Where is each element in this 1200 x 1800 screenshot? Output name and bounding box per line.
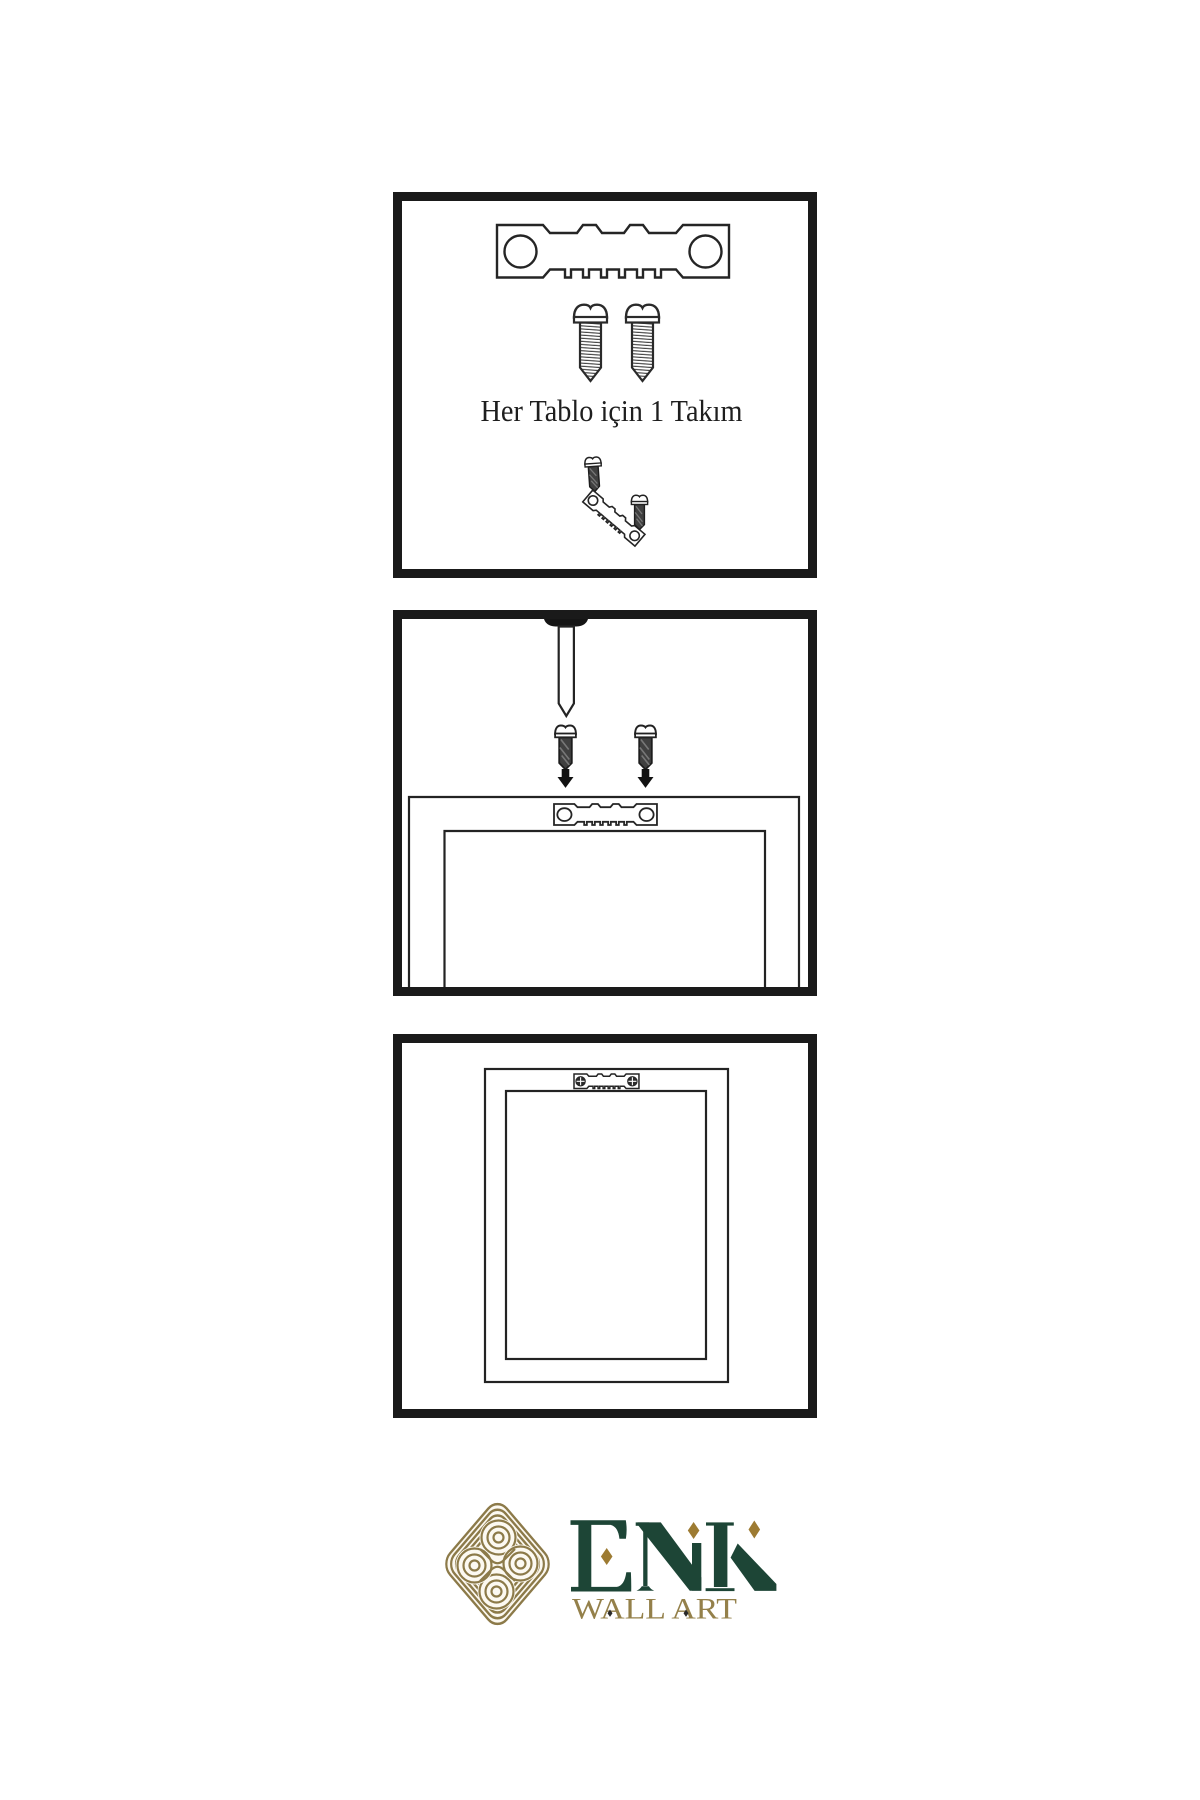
svg-text:Her Tablo için 1 Takım: Her Tablo için 1 Takım	[481, 393, 743, 428]
svg-text:WALL ART: WALL ART	[572, 1593, 737, 1626]
